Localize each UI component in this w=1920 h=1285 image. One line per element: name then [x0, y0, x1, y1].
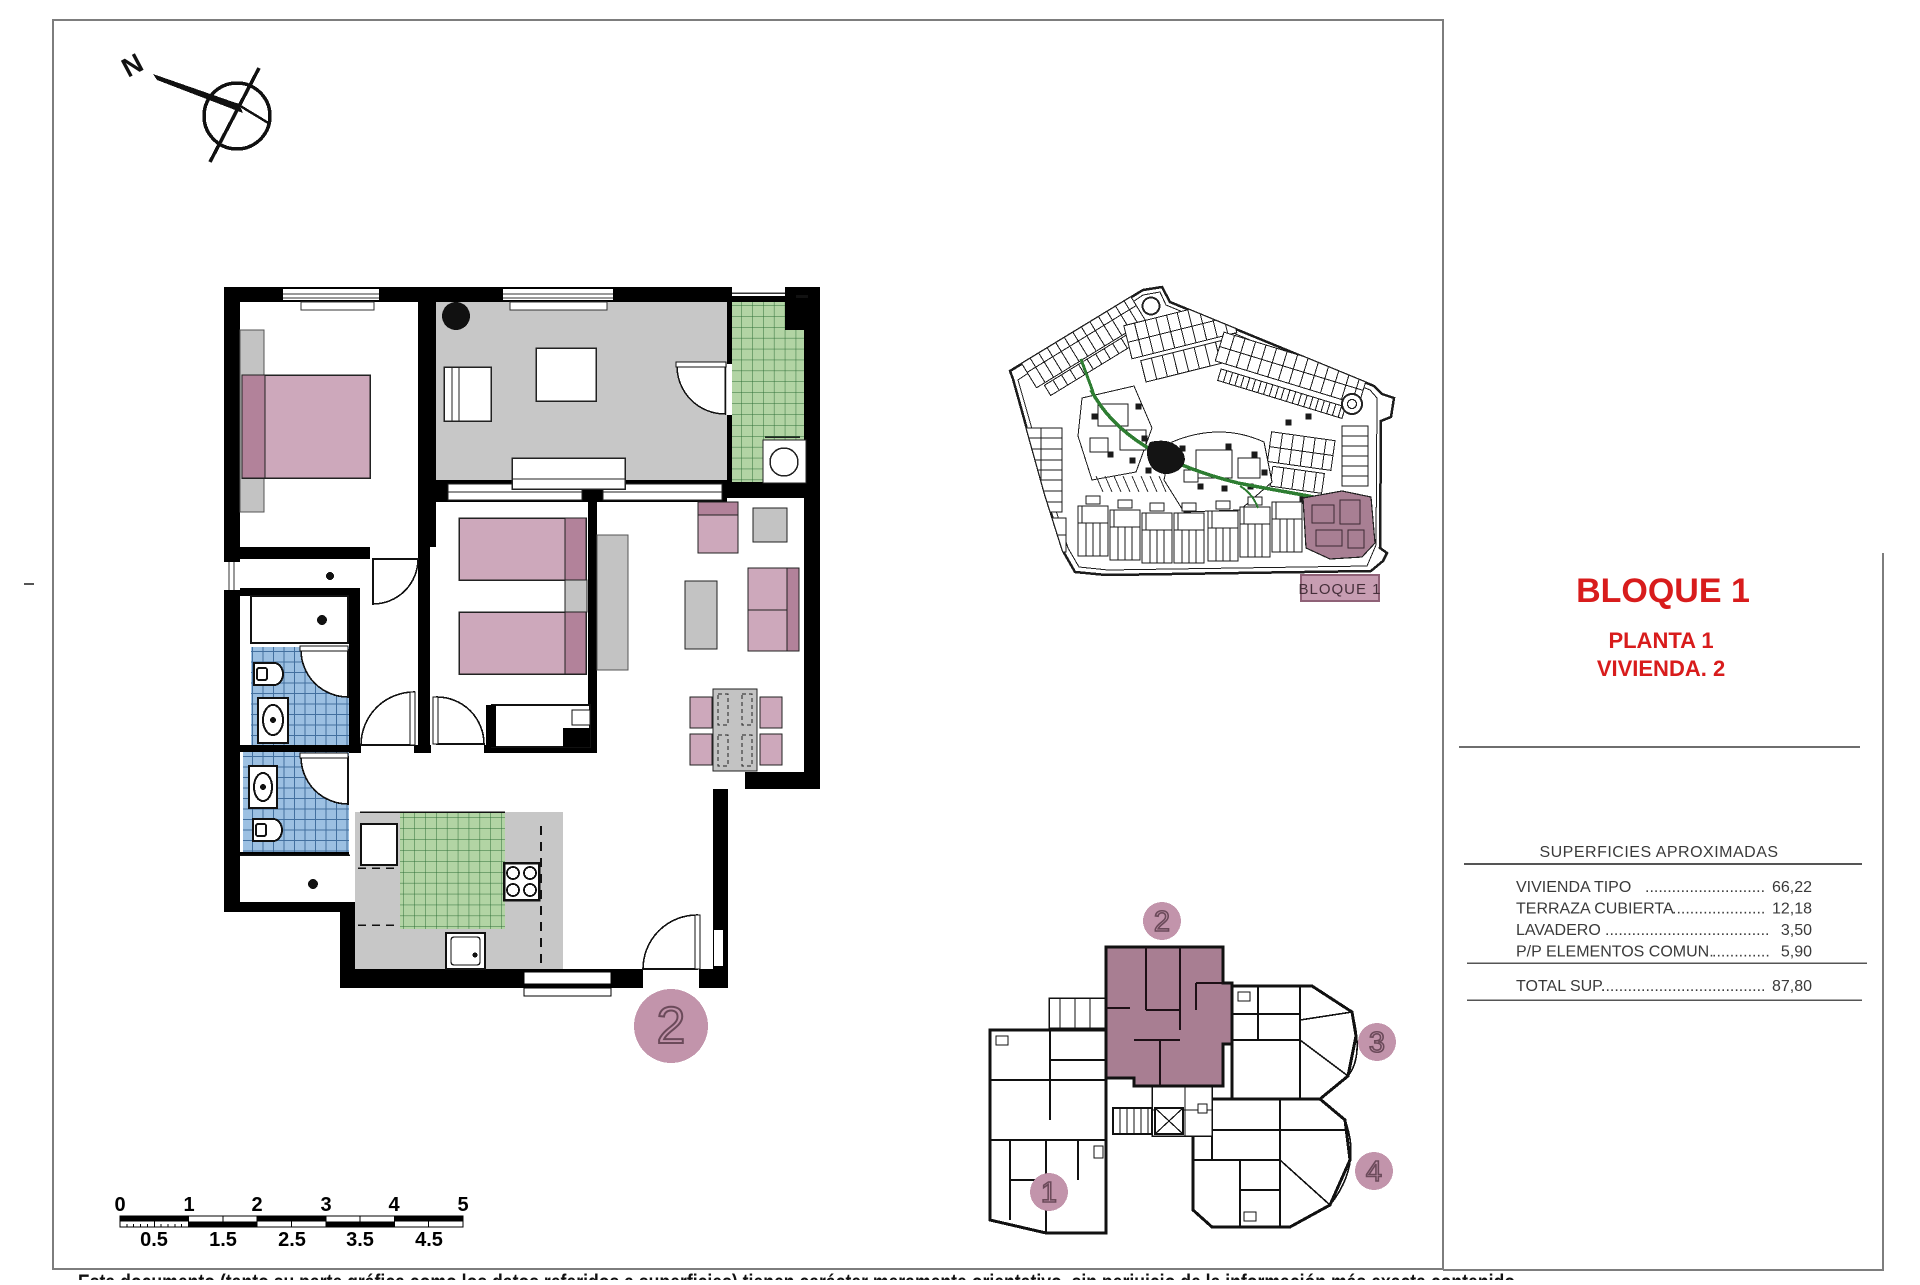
- svg-text:12,18: 12,18: [1772, 901, 1812, 918]
- svg-text:4.5: 4.5: [415, 1229, 443, 1251]
- svg-text:N: N: [117, 48, 148, 84]
- svg-text:..............................: .....................................: [1605, 922, 1769, 939]
- svg-text:2: 2: [1154, 906, 1170, 938]
- svg-text:VIVIENDA TIPO: VIVIENDA TIPO: [1516, 879, 1631, 896]
- svg-text:P/P ELEMENTOS COMUN.: P/P ELEMENTOS COMUN.: [1516, 944, 1714, 961]
- svg-text:...........................: ...........................: [1645, 879, 1765, 896]
- svg-text:66,22: 66,22: [1772, 879, 1812, 896]
- svg-text:LAVADERO: LAVADERO: [1516, 922, 1601, 939]
- svg-text:TOTAL SUP.: TOTAL SUP.: [1516, 978, 1605, 995]
- svg-text:PLANTA 1: PLANTA 1: [1608, 628, 1713, 653]
- svg-text:1: 1: [1041, 1177, 1057, 1209]
- svg-text:..............................: .....................................: [1601, 978, 1765, 995]
- svg-text:0: 0: [114, 1194, 125, 1216]
- svg-text:Esta documento (tanto su parte: Esta documento (tanto su parte gráfica c…: [78, 1271, 1515, 1280]
- svg-text:.....................: .....................: [1672, 901, 1765, 918]
- svg-text:TERRAZA CUBIERTA: TERRAZA CUBIERTA: [1516, 901, 1674, 918]
- svg-text:3.5: 3.5: [346, 1229, 374, 1251]
- svg-text:2: 2: [657, 997, 686, 1055]
- svg-text:1: 1: [183, 1194, 194, 1216]
- svg-text:5: 5: [457, 1194, 468, 1216]
- svg-text:0.5: 0.5: [140, 1229, 168, 1251]
- svg-text:VIVIENDA. 2: VIVIENDA. 2: [1597, 656, 1725, 681]
- svg-text:5,90: 5,90: [1781, 944, 1812, 961]
- svg-text:.............: .............: [1712, 944, 1770, 961]
- svg-text:SUPERFICIES APROXIMADAS: SUPERFICIES APROXIMADAS: [1539, 844, 1778, 861]
- svg-text:3: 3: [320, 1194, 331, 1216]
- svg-text:2.5: 2.5: [278, 1229, 306, 1251]
- svg-text:2: 2: [251, 1194, 262, 1216]
- svg-text:87,80: 87,80: [1772, 978, 1812, 995]
- svg-text:BLOQUE 1: BLOQUE 1: [1298, 581, 1381, 598]
- svg-text:3,50: 3,50: [1781, 922, 1812, 939]
- svg-text:1.5: 1.5: [209, 1229, 237, 1251]
- svg-text:4: 4: [388, 1194, 400, 1216]
- svg-text:3: 3: [1369, 1027, 1385, 1059]
- svg-text:BLOQUE 1: BLOQUE 1: [1576, 572, 1750, 610]
- svg-text:4: 4: [1366, 1156, 1382, 1188]
